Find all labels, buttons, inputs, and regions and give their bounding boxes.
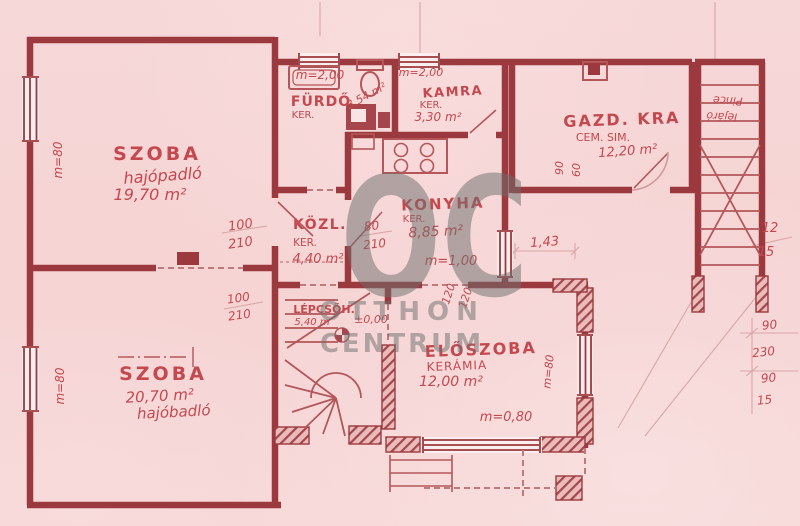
dim-parapet-left-bottom: m=80 (53, 367, 67, 404)
dim-door3-width: 100 (226, 289, 251, 306)
watermark-line1: OTTHON (319, 297, 485, 327)
dim-gazd-60: 60 (570, 163, 583, 177)
entrance-steps-icon (390, 455, 452, 492)
window-left-bottom-icon (22, 346, 39, 412)
dim-chain-90a: 90 (761, 317, 778, 333)
room-name-szoba1: SZOBA (113, 143, 201, 165)
room-name-szoba2: SZOBA (119, 363, 207, 385)
room-finish-kozl: KER. (293, 237, 317, 249)
dim-right-fraction-top: 12 (762, 221, 779, 236)
dim-gazd-90: 90 (553, 161, 566, 175)
room-name-kamra: KAMRA (422, 83, 483, 101)
room-name-gazd: GAZD. KRA (563, 108, 681, 131)
label-pince-line1: Pince (713, 93, 743, 108)
room-finish-eloszoba: KERÁMIA (426, 357, 487, 374)
watermark-line2: CENTRUM (320, 329, 484, 359)
room-area-gazd: 12,20 m² (598, 142, 658, 161)
room-floor-szoba2: hajóbadló (137, 401, 211, 423)
dim-chain-90b: 90 (760, 370, 777, 386)
scanned-floorplan-page: SZOBA hajópadló 19,70 m² m=2,00 FÜRDŐ KE… (0, 0, 800, 526)
dim-143: 1,43 (530, 234, 560, 251)
dim-parapet-eloszoba: m=80 (540, 354, 556, 389)
room-area-kamra: 3,30 m² (414, 110, 461, 124)
room-area-szoba1: 19,70 m² (114, 185, 187, 204)
dim-door1-height: 210 (227, 234, 254, 252)
window-eloszoba-right-icon (577, 334, 593, 396)
room-name-furdo: FÜRDŐ (291, 92, 351, 110)
room-finish-gazd: CEM. SIM. (576, 131, 630, 144)
dim-door3-height: 210 (227, 306, 252, 323)
label-pince-line2: lejáró (706, 109, 738, 124)
dim-door1-width: 100 (227, 216, 254, 234)
room-height-furdo: m=2,00 (296, 68, 345, 82)
dim-chain-15: 15 (756, 392, 773, 408)
watermark: OC OTTHON CENTRUM (319, 142, 528, 359)
window-left-top-icon (22, 76, 39, 142)
room-area-eloszoba: 12,00 m² (419, 374, 483, 390)
dim-right-fraction-bottom: 15 (758, 245, 775, 260)
room-finish-furdo: KER. (292, 110, 315, 121)
dim-chain-230: 230 (751, 344, 776, 360)
room-height-kamra: m=2,00 (399, 66, 443, 79)
room-name-kozl: KÖZL. (293, 215, 347, 233)
room-area-kozl: 4,40 m² (293, 252, 344, 267)
floor-plan-drawing: SZOBA hajópadló 19,70 m² m=2,00 FÜRDŐ KE… (0, 0, 800, 526)
door-leaf-icon (177, 252, 199, 265)
dim-parapet-left-top: m=80 (51, 141, 65, 178)
dim-parapet-bottom: m=0,80 (480, 410, 533, 425)
